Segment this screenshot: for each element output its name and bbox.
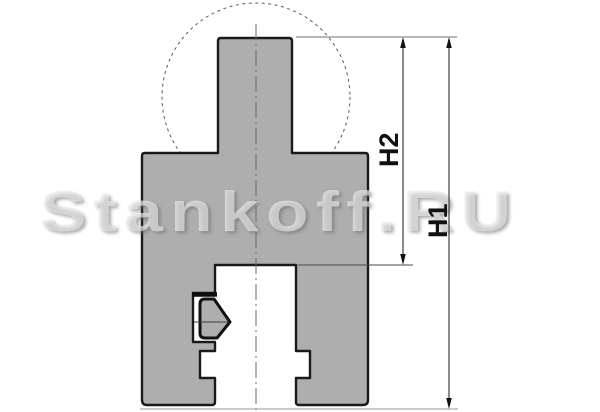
dimension-h1: H1 (423, 37, 453, 409)
dimension-layer: H2 H1 (0, 0, 600, 412)
h1-label: H1 (423, 203, 453, 238)
arrow-up-icon (446, 37, 452, 48)
arrow-up-icon (400, 37, 406, 48)
dimension-h2: H2 (374, 37, 406, 265)
arrow-down-icon (446, 398, 452, 409)
technical-drawing-canvas: Stankoff.RU H2 H1 (0, 0, 600, 412)
arrow-down-icon (400, 254, 406, 265)
h2-label: H2 (374, 132, 404, 167)
